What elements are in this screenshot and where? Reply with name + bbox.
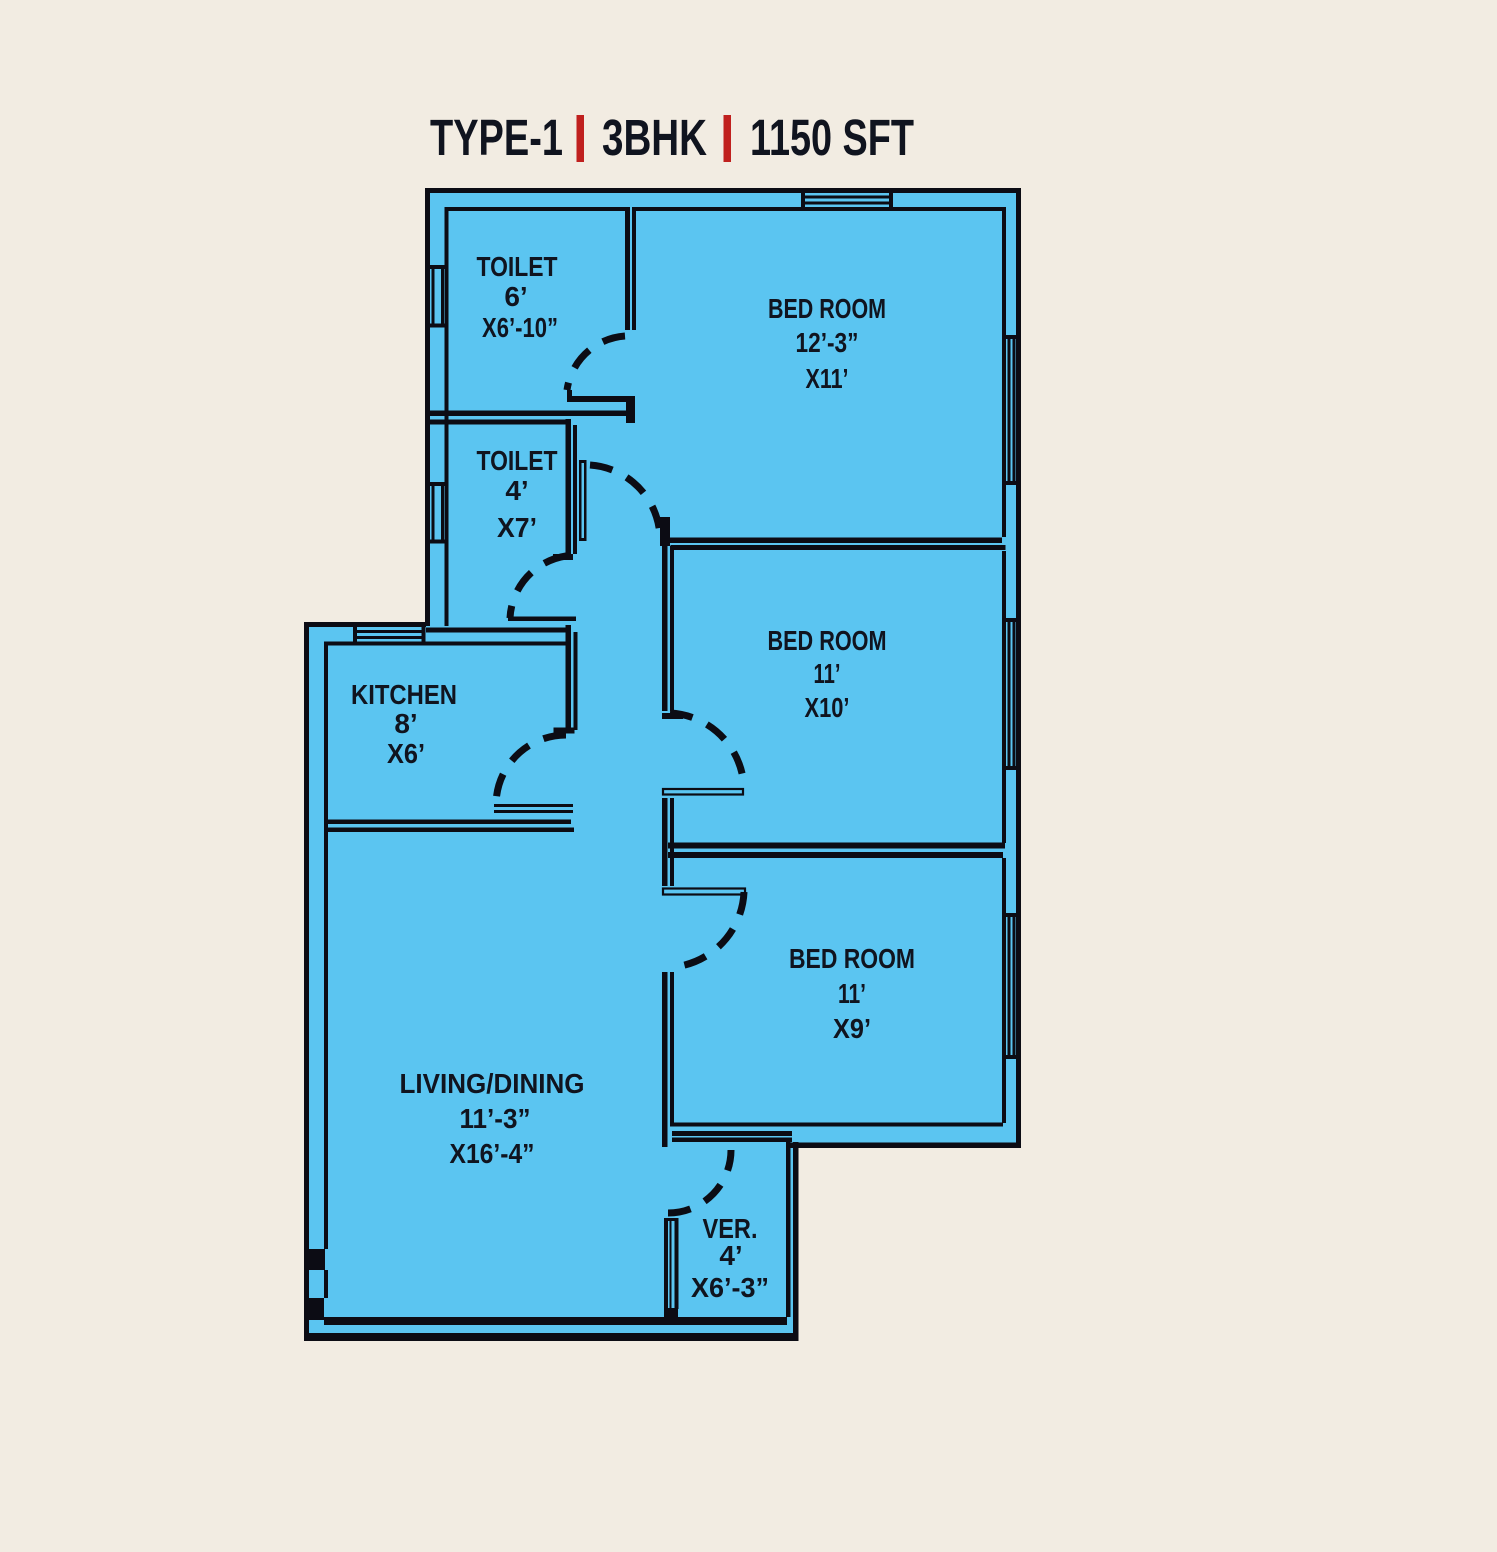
svg-text:12’-3”: 12’-3”: [796, 327, 859, 358]
svg-text:11’: 11’: [838, 978, 866, 1009]
svg-text:X7’: X7’: [497, 512, 537, 543]
svg-text:X6’-3”: X6’-3”: [691, 1272, 769, 1303]
svg-text:X16’-4”: X16’-4”: [450, 1138, 535, 1169]
svg-text:BED ROOM: BED ROOM: [789, 943, 915, 974]
svg-text:X6’: X6’: [387, 738, 425, 769]
svg-text:8’: 8’: [394, 708, 417, 739]
svg-text:6’: 6’: [504, 281, 527, 312]
svg-text:X6’-10”: X6’-10”: [482, 312, 558, 343]
svg-text:X9’: X9’: [833, 1013, 871, 1044]
svg-text:BED ROOM: BED ROOM: [768, 293, 886, 324]
svg-text:BED ROOM: BED ROOM: [768, 625, 887, 656]
svg-text:4’: 4’: [719, 1240, 742, 1271]
svg-text:TYPE-1: TYPE-1: [430, 109, 563, 166]
svg-text:1150 SFT: 1150 SFT: [750, 109, 914, 166]
svg-text:TOILET: TOILET: [477, 251, 558, 282]
svg-text:KITCHEN: KITCHEN: [351, 679, 457, 710]
svg-text:11’: 11’: [814, 658, 841, 689]
svg-text:4’: 4’: [505, 475, 528, 506]
svg-text:LIVING/DINING: LIVING/DINING: [400, 1068, 585, 1099]
svg-text:X10’: X10’: [805, 692, 850, 723]
svg-text:TOILET: TOILET: [477, 445, 558, 476]
svg-text:11’-3”: 11’-3”: [460, 1103, 531, 1134]
svg-text:3BHK: 3BHK: [602, 109, 707, 166]
svg-text:X11’: X11’: [806, 363, 849, 394]
